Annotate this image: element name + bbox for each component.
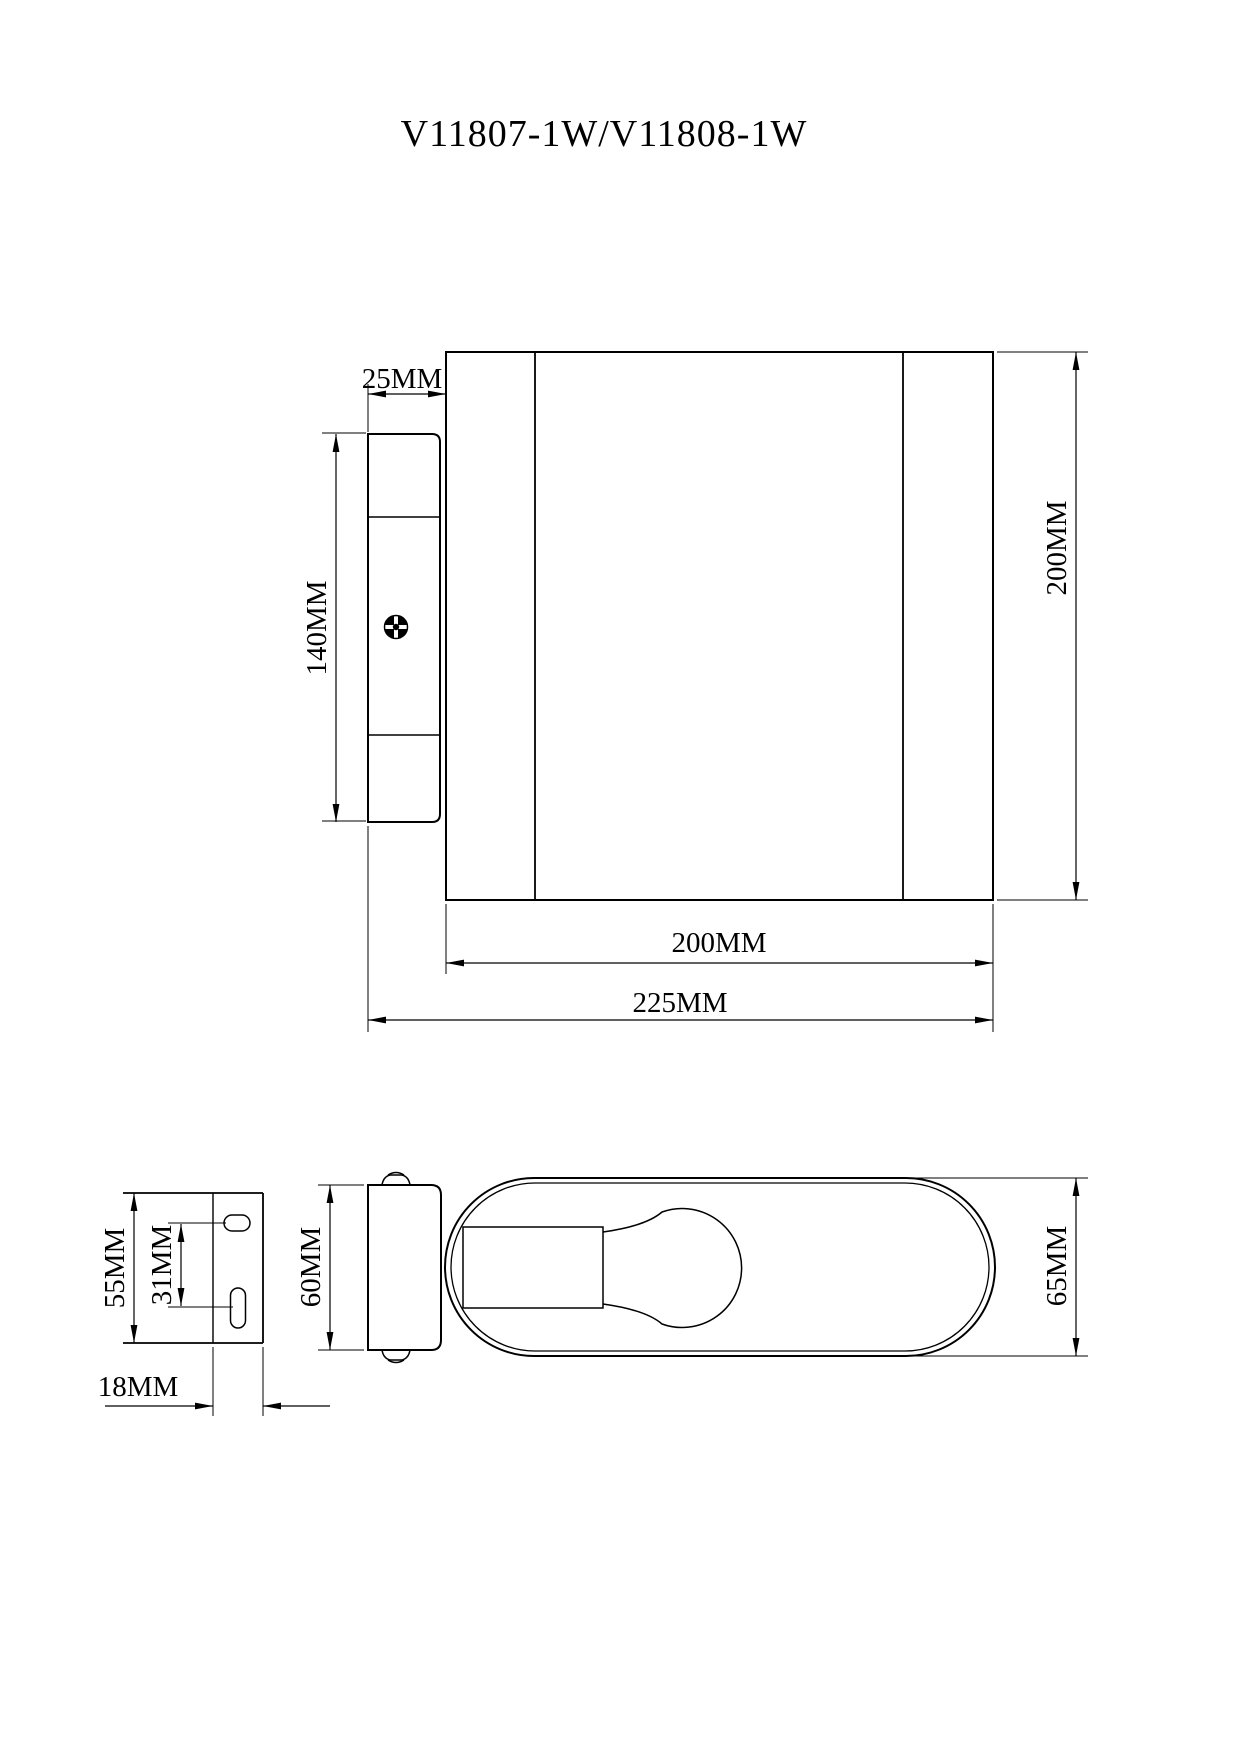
drawing-page: V11807-1W/V11808-1W 25MM 14: [0, 0, 1240, 1754]
lamp-socket: [463, 1227, 603, 1308]
dim-plate-depth: 25MM: [362, 363, 446, 432]
dim-bracket-height-label: 55MM: [99, 1228, 131, 1309]
dim-body-height-label: 200MM: [1041, 500, 1073, 595]
dim-plan-depth-label: 65MM: [1041, 1226, 1073, 1307]
dim-plate-depth-label: 25MM: [362, 363, 443, 395]
dim-plate-height-label: 140MM: [301, 580, 333, 675]
technical-drawing: V11807-1W/V11808-1W 25MM 14: [0, 0, 1240, 1754]
dim-bracket-width-label: 18MM: [98, 1371, 179, 1403]
profile-body-outline: [368, 1185, 441, 1350]
dim-profile-height-label: 60MM: [295, 1227, 327, 1308]
screw-icon: [383, 614, 409, 640]
dim-bracket-hole-spacing-label: 31MM: [146, 1225, 178, 1306]
dim-body-height: 200MM: [997, 352, 1088, 900]
dim-bracket-height: 55MM: [99, 1193, 134, 1343]
set-screw-bottom-icon: [382, 1350, 410, 1363]
dim-total-width-label: 225MM: [632, 987, 727, 1019]
bracket-slot-hole-bottom: [231, 1288, 246, 1328]
dim-plan-depth: 65MM: [880, 1178, 1088, 1356]
plan-housing-inner: [451, 1183, 989, 1351]
side-view: 25MM 140MM 200MM 200MM 225MM: [301, 352, 1088, 1032]
plan-housing-outer: [445, 1178, 995, 1356]
dim-body-width-label: 200MM: [671, 927, 766, 959]
dim-bracket-width: 18MM: [98, 1347, 330, 1416]
plan-view: 65MM: [445, 1178, 1088, 1356]
lamp-body-outline: [446, 352, 993, 900]
light-bulb: [603, 1208, 742, 1327]
dim-bracket-hole-spacing: 31MM: [146, 1223, 233, 1307]
profile-view: 60MM: [295, 1173, 441, 1363]
dim-profile-height: 60MM: [295, 1185, 364, 1350]
set-screw-top-icon: [382, 1173, 410, 1186]
dim-plate-height: 140MM: [301, 433, 366, 822]
bracket-slot-hole-top: [224, 1215, 250, 1231]
drawing-title: V11807-1W/V11808-1W: [401, 113, 808, 155]
